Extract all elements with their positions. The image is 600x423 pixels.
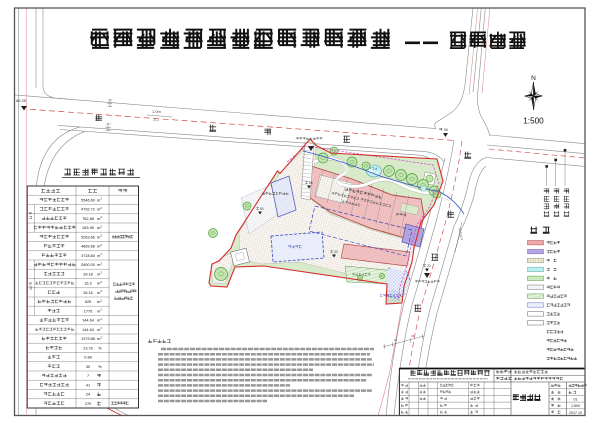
- svg-text:20: 20: [427, 264, 431, 268]
- svg-text:2600.00: 2600.00: [81, 263, 95, 267]
- svg-text:4869.68: 4869.68: [81, 245, 95, 249]
- svg-text:24: 24: [86, 393, 90, 397]
- svg-text:90: 90: [260, 207, 264, 211]
- svg-text:1:500: 1:500: [571, 404, 580, 408]
- svg-text:65: 65: [309, 181, 313, 185]
- svg-text:2017.10: 2017.10: [569, 411, 582, 415]
- svg-text:86.35: 86.35: [16, 98, 27, 103]
- svg-text:26.16: 26.16: [83, 291, 93, 295]
- svg-text:0.88: 0.88: [84, 356, 91, 360]
- svg-text:65: 65: [444, 128, 448, 132]
- svg-text:N: N: [531, 75, 536, 82]
- svg-text:4728.84: 4728.84: [81, 254, 95, 258]
- svg-text:4792.72: 4792.72: [81, 208, 95, 212]
- svg-text:30: 30: [86, 365, 90, 369]
- svg-text:%: %: [98, 364, 102, 369]
- svg-text:144.64: 144.64: [82, 319, 94, 323]
- svg-text:7: 7: [87, 374, 89, 378]
- svg-text:625: 625: [85, 300, 91, 304]
- svg-text:18: 18: [411, 334, 415, 338]
- svg-text:270: 270: [85, 402, 91, 406]
- svg-text:12: 12: [394, 338, 398, 342]
- svg-text:1:500: 1:500: [523, 117, 544, 126]
- svg-text:%: %: [98, 345, 102, 350]
- svg-text:144.64: 144.64: [82, 328, 94, 332]
- svg-text:16.2: 16.2: [84, 282, 91, 286]
- svg-text:1775: 1775: [84, 309, 92, 313]
- svg-text:1279.88: 1279.88: [81, 337, 95, 341]
- svg-text:21.2: 21.2: [153, 118, 159, 122]
- svg-text:5263.66: 5263.66: [81, 235, 95, 239]
- svg-text:20: 20: [334, 250, 338, 254]
- svg-text:41: 41: [86, 383, 90, 387]
- svg-text:1.0m: 1.0m: [152, 109, 162, 114]
- svg-text:762.88: 762.88: [82, 217, 94, 221]
- svg-text:39.18: 39.18: [83, 272, 93, 276]
- svg-text:5546.60: 5546.60: [81, 198, 95, 202]
- svg-text:263.96: 263.96: [82, 226, 94, 230]
- svg-text:01: 01: [574, 397, 578, 401]
- svg-text:23.76: 23.76: [83, 346, 93, 350]
